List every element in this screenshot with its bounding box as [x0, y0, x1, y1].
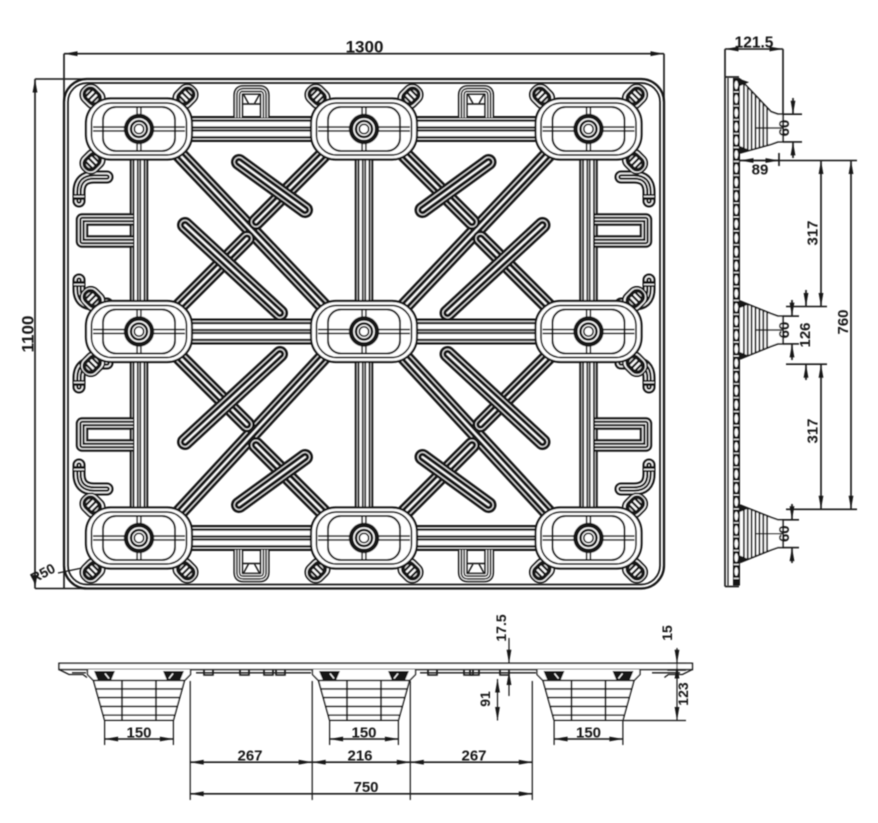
svg-text:267: 267	[461, 747, 486, 764]
svg-text:60: 60	[776, 322, 793, 339]
svg-text:760: 760	[835, 309, 852, 334]
svg-text:150: 150	[351, 724, 376, 741]
svg-text:60: 60	[776, 525, 793, 542]
svg-text:150: 150	[126, 724, 151, 741]
svg-text:1100: 1100	[18, 316, 37, 353]
svg-text:17.5: 17.5	[493, 614, 509, 641]
svg-text:317: 317	[805, 418, 822, 443]
svg-text:150: 150	[576, 724, 601, 741]
svg-text:15: 15	[659, 625, 675, 641]
svg-text:126: 126	[797, 322, 814, 347]
svg-text:91: 91	[477, 691, 493, 707]
svg-text:317: 317	[805, 220, 822, 245]
svg-text:89: 89	[752, 162, 769, 179]
svg-text:1300: 1300	[346, 37, 384, 56]
svg-text:216: 216	[347, 747, 372, 764]
svg-text:267: 267	[237, 747, 262, 764]
svg-text:750: 750	[353, 779, 378, 796]
svg-text:121.5: 121.5	[735, 35, 774, 52]
svg-text:60: 60	[776, 120, 793, 137]
svg-text:123: 123	[675, 682, 691, 706]
